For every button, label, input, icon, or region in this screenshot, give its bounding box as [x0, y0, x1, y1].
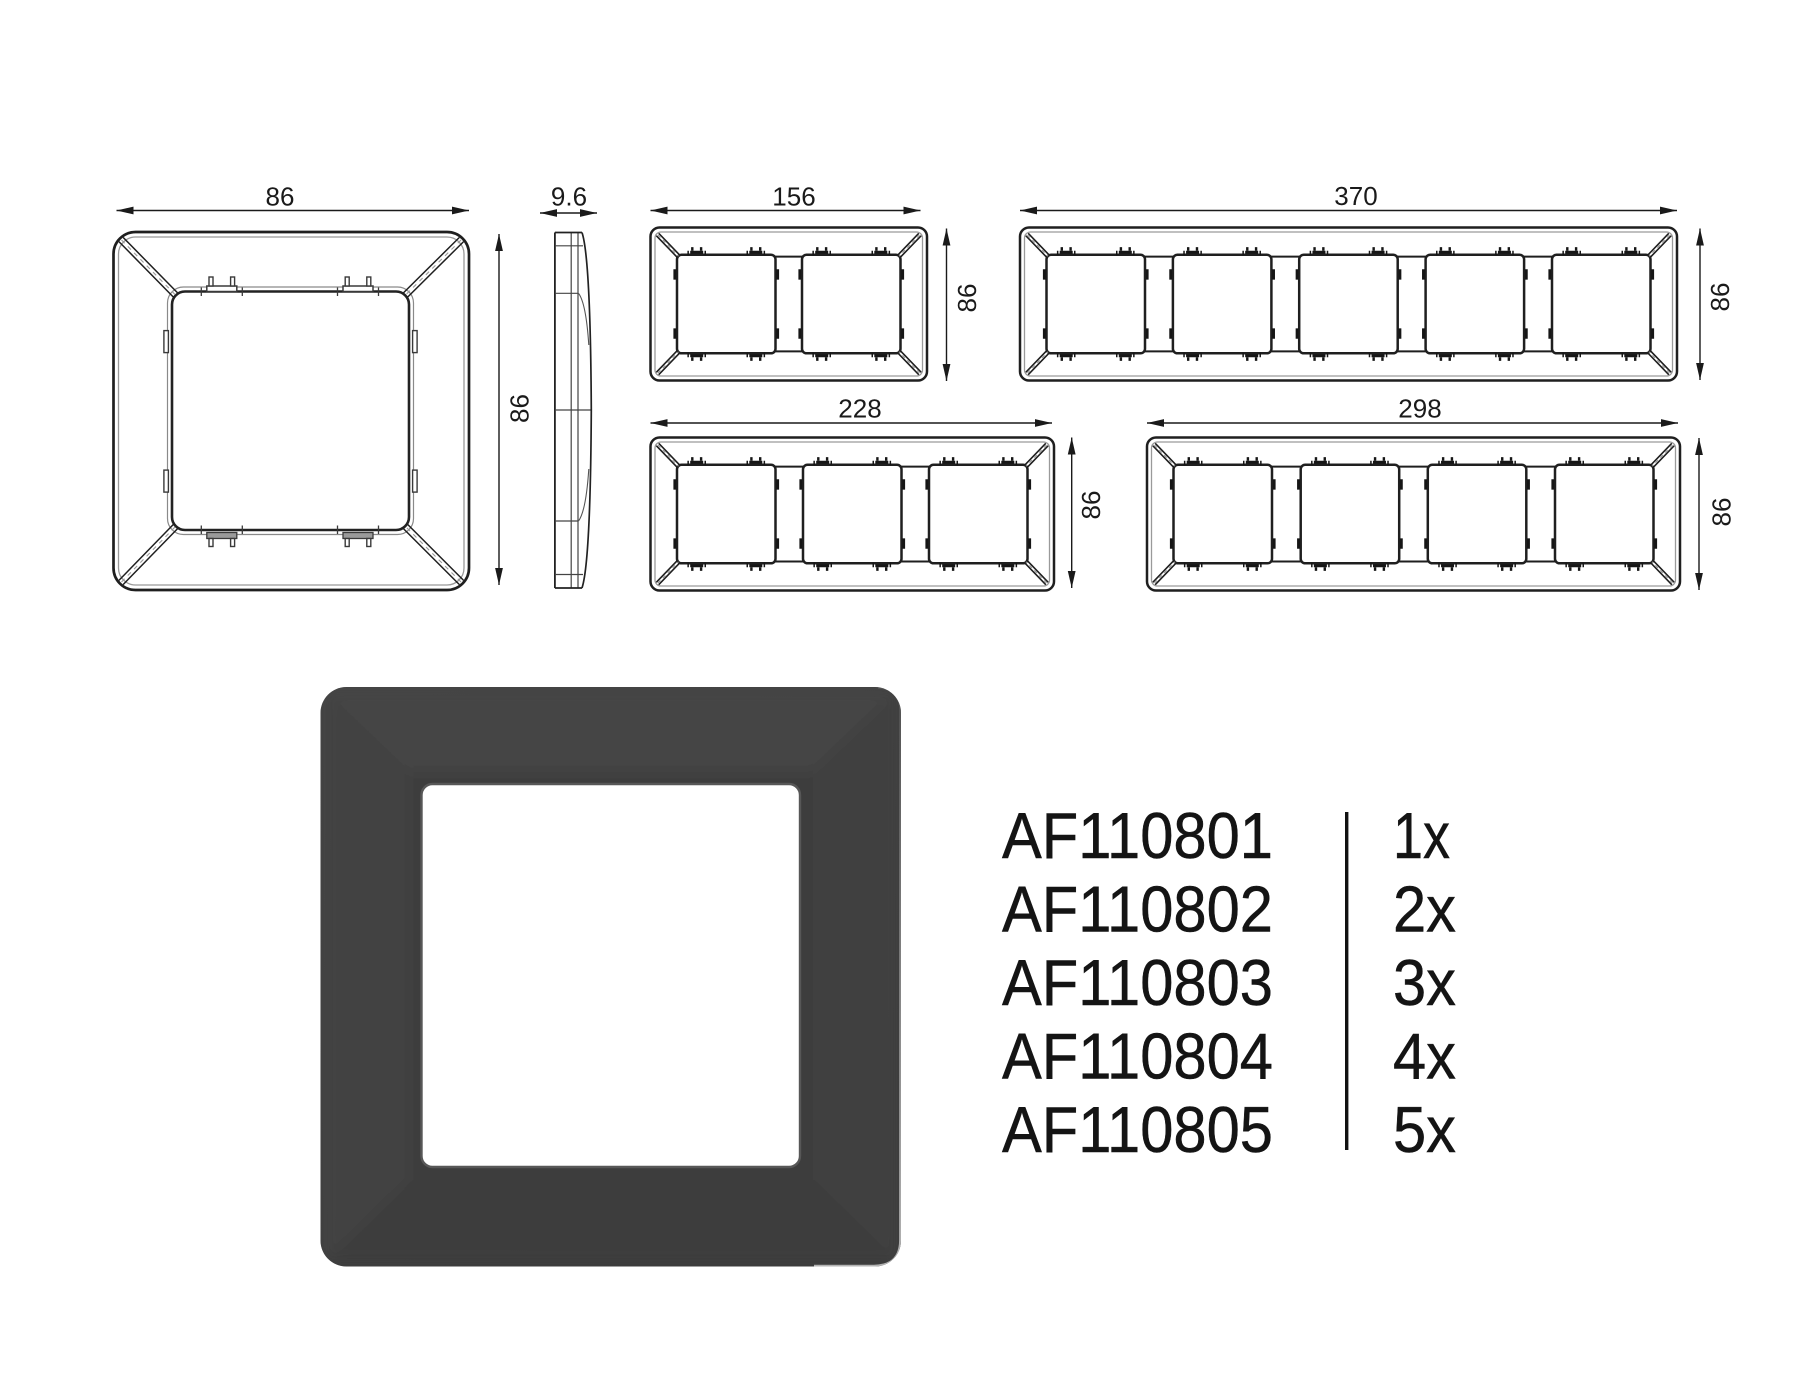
svg-text:370: 370 [1334, 181, 1377, 211]
svg-text:AF110805: AF110805 [1002, 1093, 1273, 1166]
svg-text:228: 228 [838, 393, 881, 423]
svg-text:5x: 5x [1393, 1093, 1456, 1166]
svg-text:AF110804: AF110804 [1002, 1019, 1273, 1092]
svg-text:86: 86 [1706, 498, 1736, 527]
svg-text:86: 86 [952, 284, 982, 313]
svg-text:3x: 3x [1393, 946, 1456, 1019]
svg-text:86: 86 [266, 181, 295, 211]
svg-text:4x: 4x [1393, 1019, 1456, 1092]
svg-text:AF110801: AF110801 [1002, 799, 1273, 872]
svg-text:1x: 1x [1393, 799, 1450, 872]
svg-text:298: 298 [1398, 393, 1441, 423]
svg-text:86: 86 [504, 394, 534, 423]
svg-text:86: 86 [1705, 283, 1735, 312]
svg-text:AF110802: AF110802 [1002, 873, 1273, 946]
svg-text:86: 86 [1076, 491, 1106, 520]
svg-text:AF110803: AF110803 [1002, 946, 1273, 1019]
svg-text:9.6: 9.6 [551, 181, 587, 211]
svg-text:156: 156 [772, 181, 815, 211]
svg-text:2x: 2x [1393, 873, 1456, 946]
